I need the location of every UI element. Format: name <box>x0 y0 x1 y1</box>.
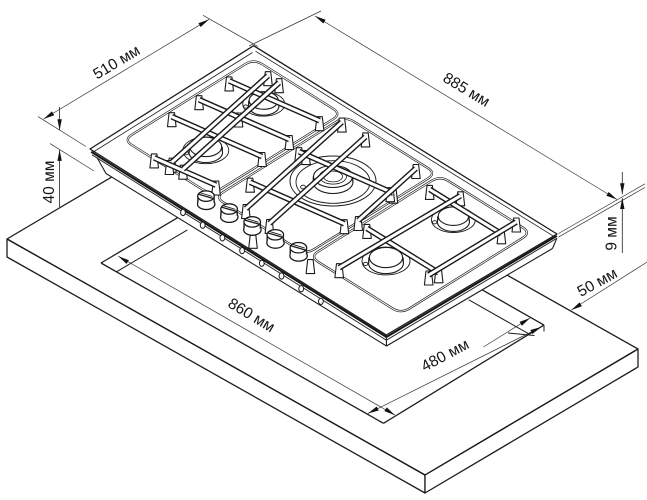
svg-text:9 мм: 9 мм <box>604 216 621 250</box>
svg-text:40 мм: 40 мм <box>41 161 58 204</box>
